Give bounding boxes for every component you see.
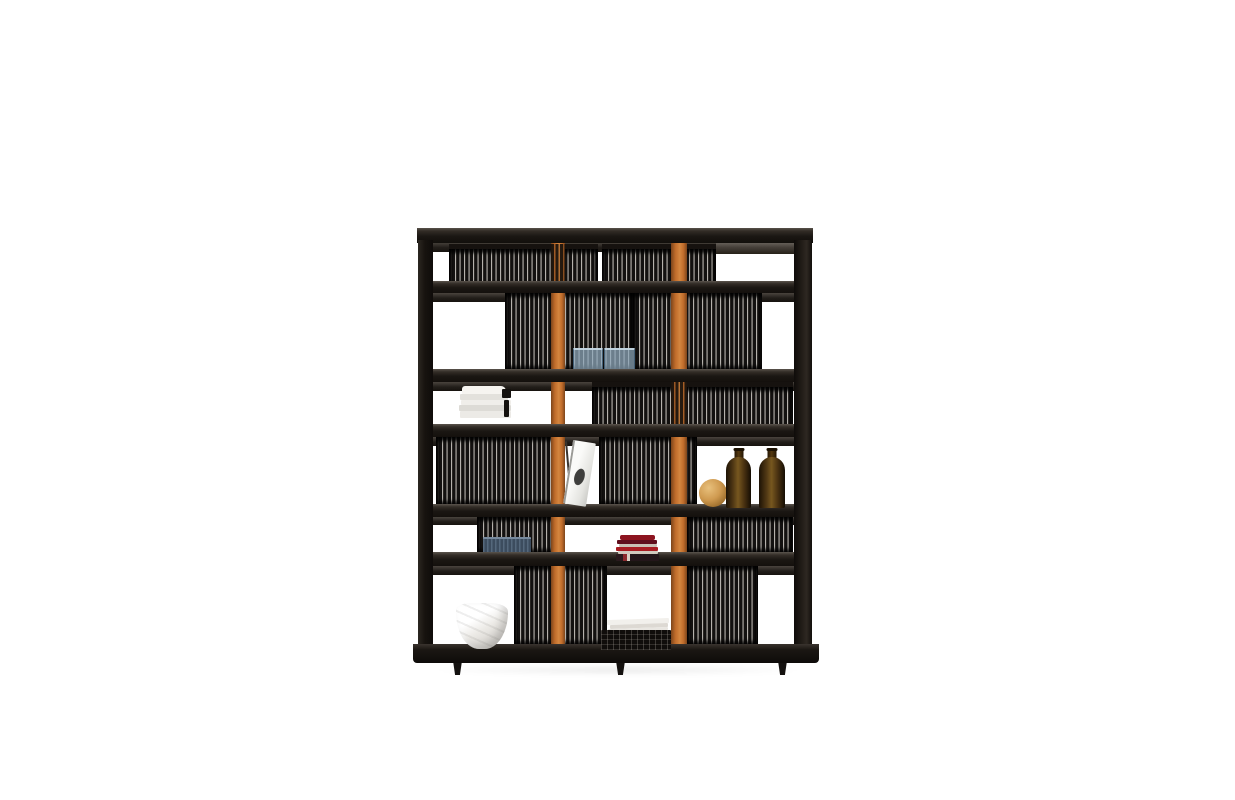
left-post bbox=[418, 240, 433, 645]
leather-strap-left bbox=[551, 242, 565, 645]
amber-bottle bbox=[726, 446, 751, 508]
strap-behind-slats-shade bbox=[671, 382, 687, 424]
shelf-board-2 bbox=[433, 369, 794, 382]
right-post bbox=[794, 240, 812, 645]
amber-bottle bbox=[759, 446, 785, 508]
top-beam bbox=[417, 228, 813, 243]
slat-panel-row1-left bbox=[449, 244, 598, 286]
black-bookend bbox=[504, 400, 509, 417]
slat-panel-row2-right bbox=[633, 293, 762, 369]
book-spine bbox=[462, 386, 506, 394]
slat-panel-row6-right bbox=[687, 566, 758, 644]
book-spine bbox=[616, 554, 659, 561]
slat-panel-row3-right bbox=[592, 382, 793, 429]
white-sculptural-bowl bbox=[456, 603, 508, 649]
shelf-board-5 bbox=[433, 552, 794, 566]
leather-strap-right bbox=[671, 242, 687, 645]
bottle-body bbox=[726, 457, 751, 508]
red-book-stack bbox=[615, 535, 660, 561]
bottle-body bbox=[759, 457, 785, 508]
row-1-shelf-underside bbox=[716, 242, 794, 254]
leaning-magazine bbox=[563, 440, 596, 507]
wooden-sphere bbox=[699, 479, 727, 507]
black-bookend bbox=[502, 389, 511, 398]
slat-panel-row5-right bbox=[687, 517, 793, 552]
product-photo-canvas bbox=[0, 0, 1235, 800]
slat-panel-row4-left bbox=[436, 437, 555, 504]
slat-panel-row1-right bbox=[602, 244, 716, 286]
white-book-stack bbox=[459, 386, 515, 418]
wire-basket-with-books bbox=[601, 615, 671, 650]
shelf-board-3 bbox=[433, 424, 794, 437]
wire-basket bbox=[601, 630, 671, 650]
strap-behind-slats-shade bbox=[551, 244, 565, 281]
shelf-board-1 bbox=[433, 281, 794, 293]
